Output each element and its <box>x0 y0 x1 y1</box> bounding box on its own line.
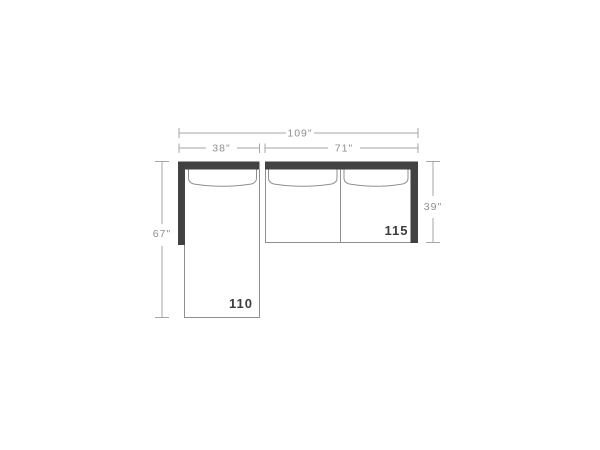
dimension-sofa-width-label: 71" <box>335 143 353 155</box>
dimension-overall-width: 109" <box>179 128 418 140</box>
dimension-chaise-length-label: 67" <box>153 228 171 240</box>
sofa-piece-number: 115 <box>385 223 409 238</box>
dimension-sofa-width: 71" <box>265 143 418 155</box>
sofa-right-cushion-outline <box>344 170 408 187</box>
chaise-frame-back-and-arm <box>178 162 260 246</box>
dimension-chaise-width: 38" <box>179 143 260 155</box>
dimension-chaise-length: 67" <box>153 162 171 318</box>
diagram-canvas: 109" 38" 71" 67" 39" 110 115 <box>0 0 600 450</box>
dimension-overall-width-label: 109" <box>287 128 312 140</box>
dimension-sofa-depth-label: 39" <box>424 201 442 213</box>
chaise-piece-number: 110 <box>229 296 253 311</box>
chaise-cushion-outline <box>189 170 257 187</box>
sofa-left-cushion-outline <box>269 170 338 187</box>
dimension-sofa-depth: 39" <box>424 162 442 243</box>
dimension-chaise-width-label: 38" <box>212 143 230 155</box>
sofa-dimension-diagram: 109" 38" 71" 67" 39" 110 115 <box>0 0 600 450</box>
